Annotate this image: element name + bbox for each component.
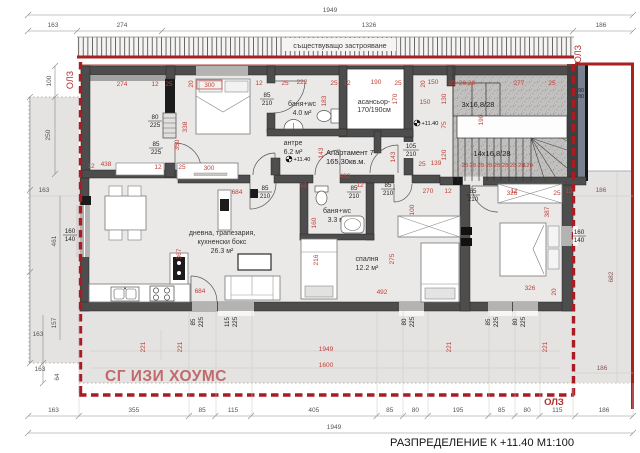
svg-text:12: 12 [510,188,518,195]
svg-text:кухненски бокс: кухненски бокс [198,238,247,246]
svg-text:170: 170 [392,93,399,104]
svg-text:682: 682 [608,271,615,282]
svg-text:163: 163 [48,407,59,414]
svg-text:186: 186 [596,22,607,29]
svg-text:25: 25 [553,190,561,197]
svg-text:275: 275 [389,253,396,264]
svg-text:210: 210 [383,190,394,197]
svg-text:РАЗПРЕДЕЛЕНИЕ К +11.40 М1:100: РАЗПРЕДЕЛЕНИЕ К +11.40 М1:100 [390,437,574,449]
svg-text:225: 225 [520,316,527,327]
svg-text:210: 210 [468,196,479,203]
svg-text:270: 270 [423,188,434,195]
svg-text:387: 387 [544,206,551,217]
svg-text:190: 190 [371,79,382,86]
svg-text:85: 85 [153,141,160,148]
svg-text:100: 100 [409,204,416,215]
svg-text:1949: 1949 [323,7,338,14]
svg-text:4.0 м²: 4.0 м² [293,110,312,117]
svg-text:28 28 28 28 28 28 28 28: 28 28 28 28 28 28 28 28 [462,163,525,169]
svg-text:277: 277 [514,80,525,87]
svg-text:20: 20 [551,288,558,296]
svg-text:139: 139 [431,160,442,167]
svg-text:186: 186 [599,407,610,414]
svg-text:163: 163 [35,366,46,373]
svg-text:85: 85 [351,185,358,192]
svg-text:225: 225 [493,316,500,327]
svg-text:438: 438 [101,161,112,168]
svg-text:130: 130 [441,93,448,104]
svg-text:274: 274 [117,81,128,88]
svg-text:6.2 м²: 6.2 м² [284,149,303,156]
svg-text:85: 85 [264,92,271,99]
svg-text:210: 210 [260,193,271,200]
svg-text:дневна, трапезария,: дневна, трапезария, [189,230,255,237]
svg-text:85: 85 [198,407,206,414]
svg-text:140: 140 [574,237,585,244]
svg-text:115: 115 [552,407,563,414]
svg-text:75: 75 [441,121,448,129]
svg-text:274: 274 [117,22,128,29]
svg-text:80: 80 [523,407,531,414]
svg-text:1600: 1600 [319,362,334,369]
svg-text:85: 85 [262,185,269,192]
svg-text:85: 85 [498,407,506,414]
svg-text:1949: 1949 [319,346,334,353]
svg-text:326: 326 [525,285,536,292]
svg-text:25: 25 [418,161,426,168]
svg-text:195: 195 [453,407,464,414]
svg-text:спалня: спалня [356,256,379,263]
svg-text:ОЛЗ: ОЛЗ [65,71,75,89]
svg-text:12: 12 [299,182,307,189]
svg-text:14x16,8/28: 14x16,8/28 [473,149,510,158]
svg-text:221: 221 [542,341,549,352]
svg-text:150: 150 [420,99,431,106]
svg-text:85: 85 [485,318,492,325]
svg-text:съществуващо застрояване: съществуващо застрояване [293,41,386,50]
svg-text:80: 80 [412,407,420,414]
svg-text:222: 222 [297,79,308,86]
svg-text:12: 12 [154,164,162,171]
svg-text:160: 160 [574,229,585,236]
svg-text:355: 355 [128,407,139,414]
svg-text:250: 250 [45,129,52,140]
svg-text:25: 25 [281,80,289,87]
svg-text:432: 432 [340,173,351,180]
svg-text:12: 12 [87,163,95,170]
svg-text:асансьор-: асансьор- [358,99,391,106]
svg-text:225: 225 [198,316,205,327]
svg-text:160: 160 [65,228,76,235]
svg-text:ОЛЗ: ОЛЗ [573,45,583,63]
svg-text:225: 225 [151,149,162,156]
svg-text:186: 186 [596,187,607,194]
svg-text:25: 25 [548,80,556,87]
svg-text:25: 25 [448,80,456,87]
svg-text:105: 105 [406,143,417,150]
svg-text:25: 25 [394,80,402,87]
svg-text:12: 12 [151,81,159,88]
svg-text:115: 115 [224,317,231,327]
svg-text:163: 163 [48,22,59,29]
svg-text:+11.40: +11.40 [422,121,439,127]
svg-text:143: 143 [318,147,325,158]
svg-text:225: 225 [150,122,161,129]
svg-text:210: 210 [406,151,417,158]
svg-text:150: 150 [428,79,439,86]
svg-text:85: 85 [385,182,392,189]
svg-text:3x16,8/28: 3x16,8/28 [462,100,495,109]
svg-text:350: 350 [174,139,181,150]
svg-text:20: 20 [188,80,195,88]
svg-text:12: 12 [343,80,351,87]
svg-text:12: 12 [444,188,452,195]
svg-text:338: 338 [182,121,189,132]
svg-text:80: 80 [512,318,519,325]
svg-text:684: 684 [195,288,206,295]
svg-text:12: 12 [255,80,263,87]
svg-text:210: 210 [349,193,360,200]
svg-text:12: 12 [356,182,364,189]
svg-text:300: 300 [204,82,215,89]
svg-text:64: 64 [54,373,61,381]
svg-text:367: 367 [176,248,183,259]
svg-text:26.3 м²: 26.3 м² [211,248,234,255]
svg-text:492: 492 [377,289,388,296]
svg-text:80: 80 [578,94,584,100]
svg-text:антре: антре [284,140,303,147]
svg-text:12: 12 [565,188,573,195]
svg-text:1326: 1326 [362,22,377,29]
svg-text:12.2 м²: 12.2 м² [356,265,379,272]
svg-text:300: 300 [204,165,215,172]
svg-text:25: 25 [178,164,186,171]
svg-text:143: 143 [390,151,397,162]
svg-text:85: 85 [386,407,394,414]
svg-text:+11.40: +11.40 [294,157,311,163]
svg-text:183: 183 [321,95,328,106]
svg-text:405: 405 [308,407,319,414]
svg-text:165,30кв.м.: 165,30кв.м. [326,157,366,166]
svg-text:100: 100 [46,75,53,86]
svg-text:190: 190 [478,114,485,125]
svg-text:210: 210 [262,100,273,107]
svg-text:221: 221 [140,341,147,352]
svg-text:СГ ИЗИ ХОУМС: СГ ИЗИ ХОУМС [105,368,227,385]
svg-text:221: 221 [446,341,453,352]
svg-text:1949: 1949 [327,424,342,431]
svg-text:85: 85 [190,318,197,325]
svg-text:140: 140 [65,236,76,243]
svg-text:26,28: 26,28 [459,80,476,87]
svg-text:225: 225 [232,316,239,327]
svg-text:25: 25 [165,81,173,88]
svg-text:80: 80 [152,114,159,121]
svg-text:115: 115 [228,407,239,414]
svg-text:163: 163 [33,331,44,338]
svg-text:Апартамент 7: Апартамент 7 [326,148,374,157]
svg-text:170/190см: 170/190см [357,107,391,114]
svg-text:225: 225 [409,316,416,327]
svg-text:120: 120 [523,163,533,169]
svg-text:461: 461 [51,235,58,246]
svg-text:160: 160 [311,217,318,228]
svg-text:163: 163 [39,187,50,194]
svg-text:85: 85 [470,188,477,195]
svg-text:186: 186 [597,365,608,372]
svg-text:120: 120 [441,149,448,160]
svg-text:25: 25 [330,80,338,87]
svg-text:157: 157 [51,317,58,328]
svg-text:684: 684 [232,189,243,196]
svg-text:80: 80 [401,318,408,325]
svg-text:216: 216 [313,254,320,265]
svg-text:20: 20 [420,80,427,88]
svg-text:221: 221 [177,341,184,352]
svg-text:баня+wc: баня+wc [323,207,352,215]
